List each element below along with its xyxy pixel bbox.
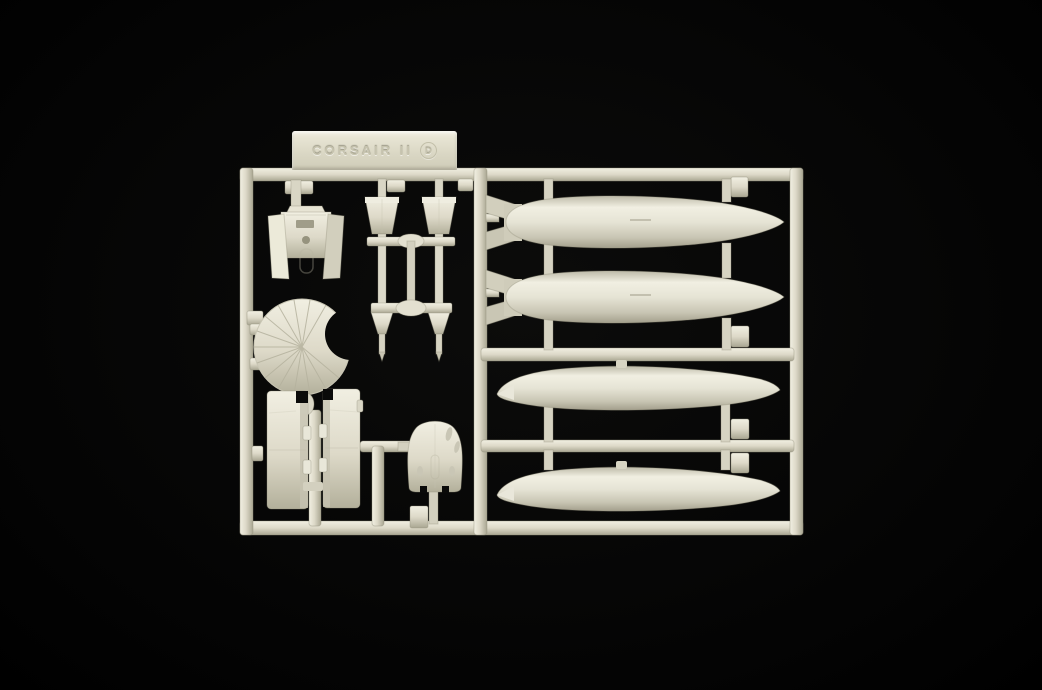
sprue-photo: CORSAIR II D (0, 0, 1042, 690)
frame-rail-mid-upper (481, 348, 794, 361)
part-drop-tank-finned-2 (486, 270, 784, 325)
part-gear-door-left (267, 391, 311, 509)
part-gear-door-right (319, 389, 363, 508)
sprue-graphic (0, 0, 1042, 690)
frame-rail-bottom (240, 521, 803, 535)
frame-rail-mid-lower-right (481, 440, 794, 452)
sprue-label-tab: CORSAIR II D (292, 131, 457, 170)
door-cross-stub (303, 482, 323, 491)
part-drop-tank-finned-1 (486, 195, 784, 250)
part-drop-tank-smooth-1 (497, 360, 780, 410)
part-bomb-right (422, 179, 456, 361)
part-cowling-dome (398, 421, 462, 528)
frame-rail-left (240, 168, 253, 535)
frame-rail-stub-vertical (372, 446, 384, 526)
part-bomb-left (365, 179, 399, 361)
sprue-label-text: CORSAIR II (312, 143, 413, 158)
part-cockpit-bulkhead (268, 180, 344, 279)
sprue-letter-badge: D (420, 142, 437, 159)
